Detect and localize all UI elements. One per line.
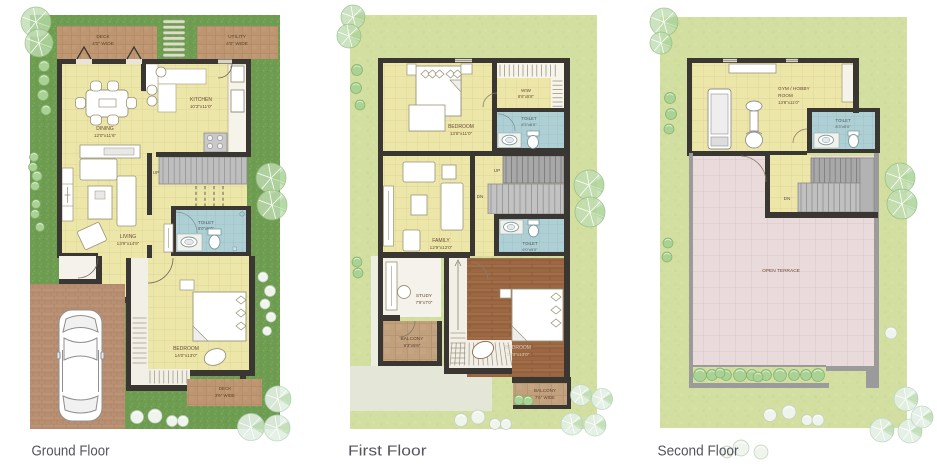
svg-text:DECK: DECK bbox=[219, 386, 233, 391]
svg-text:13'9"x14'9": 13'9"x14'9" bbox=[117, 241, 140, 246]
svg-text:10'3"x11'0": 10'3"x11'0" bbox=[190, 104, 213, 109]
svg-text:4'0" WIDE: 4'0" WIDE bbox=[92, 41, 114, 47]
svg-text:FAMILY: FAMILY bbox=[432, 238, 450, 244]
svg-text:TOILET: TOILET bbox=[835, 118, 851, 123]
svg-text:12'0"x11'6": 12'0"x11'6" bbox=[94, 133, 117, 138]
svg-text:BEDROOM: BEDROOM bbox=[448, 124, 474, 130]
svg-text:OPEN TERRACE: OPEN TERRACE bbox=[762, 268, 800, 274]
svg-text:14'3"x13'0": 14'3"x13'0" bbox=[507, 352, 530, 357]
svg-text:8'6"x5'8": 8'6"x5'8" bbox=[518, 94, 534, 99]
svg-text:8'3"x5'0": 8'3"x5'0" bbox=[835, 124, 851, 129]
svg-text:UTILITY: UTILITY bbox=[228, 34, 247, 40]
svg-text:TOILET: TOILET bbox=[521, 116, 537, 121]
svg-text:4'0" WIDE: 4'0" WIDE bbox=[226, 41, 248, 47]
svg-text:BALCONY: BALCONY bbox=[401, 336, 425, 342]
svg-text:First Floor: First Floor bbox=[348, 443, 427, 460]
svg-text:13'8"x11'0": 13'8"x11'0" bbox=[778, 100, 800, 105]
svg-text:STUDY: STUDY bbox=[416, 293, 433, 299]
svg-text:BALCONY: BALCONY bbox=[534, 388, 556, 393]
svg-text:BEDROOM: BEDROOM bbox=[505, 345, 531, 351]
svg-text:6'0"x5'0": 6'0"x5'0" bbox=[522, 247, 538, 252]
svg-text:DINING: DINING bbox=[96, 126, 114, 132]
svg-text:8'3"x6'0": 8'3"x6'0" bbox=[521, 122, 537, 127]
svg-text:DN: DN bbox=[477, 194, 484, 199]
svg-text:ROOM: ROOM bbox=[778, 93, 793, 99]
svg-text:DECK: DECK bbox=[96, 34, 110, 40]
svg-text:KITCHEN: KITCHEN bbox=[190, 97, 212, 103]
svg-text:12'9"x12'0": 12'9"x12'0" bbox=[430, 245, 453, 250]
svg-text:3'6" WIDE: 3'6" WIDE bbox=[215, 393, 235, 398]
svg-text:9'3"x5'6": 9'3"x5'6" bbox=[404, 343, 421, 348]
svg-text:UP: UP bbox=[153, 170, 159, 175]
svg-text:TOILET: TOILET bbox=[522, 241, 538, 246]
svg-text:13'8"x11'0": 13'8"x11'0" bbox=[450, 131, 473, 136]
svg-text:GYM / HOBBY: GYM / HOBBY bbox=[778, 86, 811, 92]
svg-text:DN: DN bbox=[784, 196, 791, 201]
svg-text:14'0"x13'0": 14'0"x13'0" bbox=[175, 353, 198, 358]
svg-text:7'9"x7'0": 7'9"x7'0" bbox=[416, 300, 433, 305]
svg-text:TOILET: TOILET bbox=[198, 220, 214, 225]
svg-text:Second Floor: Second Floor bbox=[658, 443, 739, 460]
svg-text:Ground Floor: Ground Floor bbox=[32, 443, 110, 460]
svg-text:BEDROOM: BEDROOM bbox=[173, 346, 199, 352]
svg-text:WIW: WIW bbox=[521, 88, 532, 93]
svg-text:7'6" WIDE: 7'6" WIDE bbox=[535, 395, 555, 400]
svg-text:LIVING: LIVING bbox=[120, 234, 137, 240]
svg-text:UP: UP bbox=[494, 168, 500, 173]
